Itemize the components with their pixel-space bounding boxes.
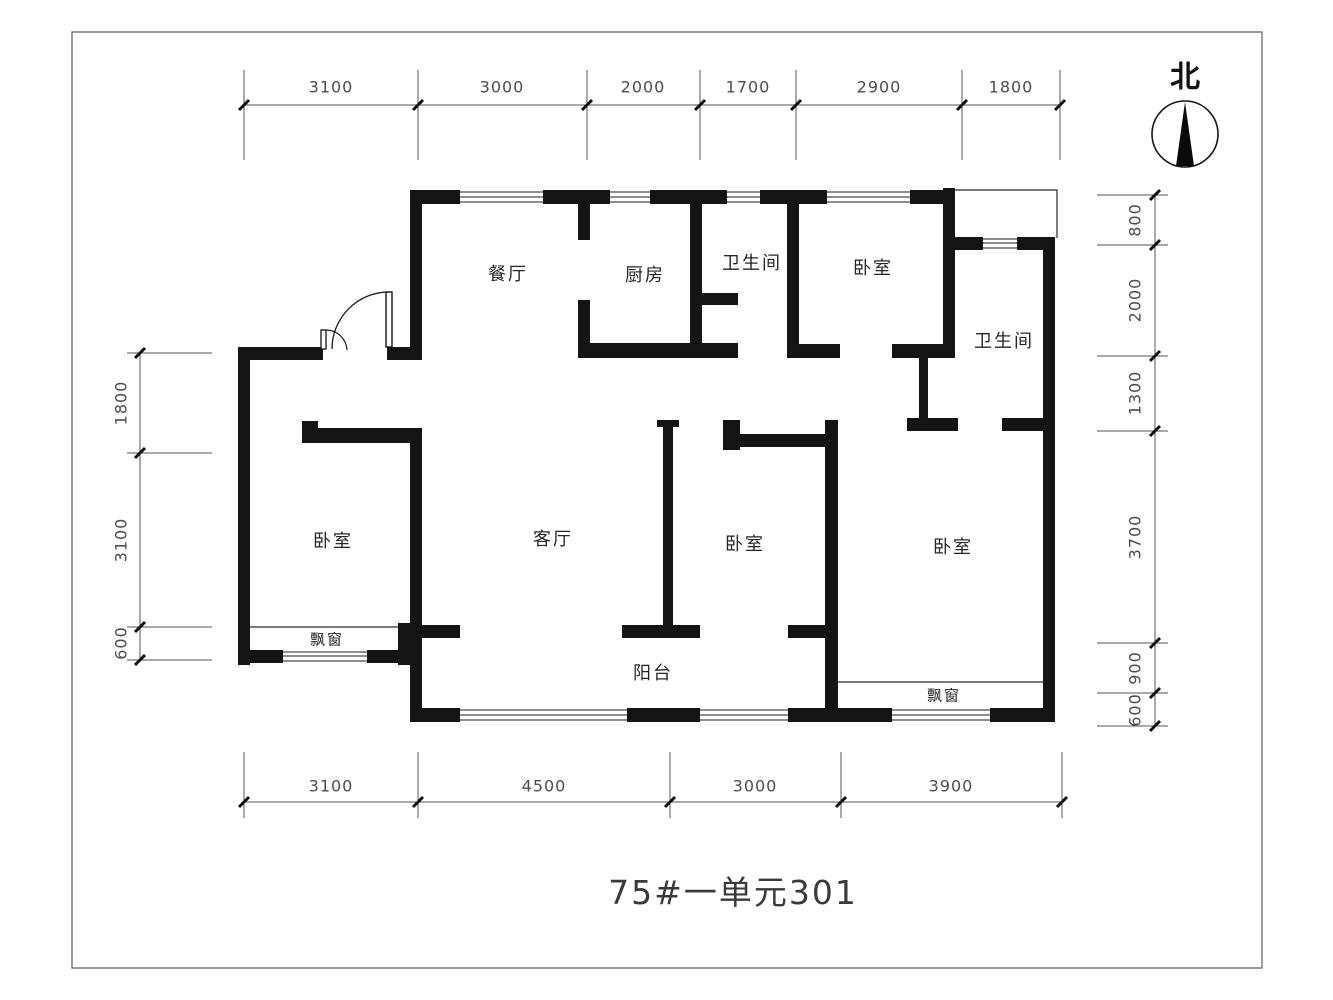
north-arrow: [1152, 101, 1218, 167]
window: [827, 192, 910, 202]
window: [700, 710, 788, 720]
entry-door: [321, 292, 392, 350]
floorplan-drawing: [0, 0, 1333, 1000]
floorplan-page: 75#一单元301 北 餐厅厨房卫生间卧室卫生间卧室客厅卧室卧室飘窗阳台飘窗31…: [0, 0, 1333, 1000]
walls: [238, 188, 1055, 722]
north-arrow-needle: [1176, 102, 1194, 166]
dimension-lines: [127, 70, 1168, 818]
window: [983, 239, 1017, 248]
window: [283, 652, 367, 661]
ac-platform-outline: [955, 190, 1057, 238]
window: [460, 710, 627, 720]
door-leaf-small: [321, 330, 326, 349]
door-swing-arc-small: [326, 330, 347, 350]
window: [610, 192, 650, 202]
window: [892, 710, 990, 720]
door-swing-arc-large: [332, 292, 389, 349]
windows: [283, 192, 1017, 720]
window: [727, 192, 760, 202]
door-leaf-large: [386, 292, 392, 347]
window: [460, 192, 543, 202]
